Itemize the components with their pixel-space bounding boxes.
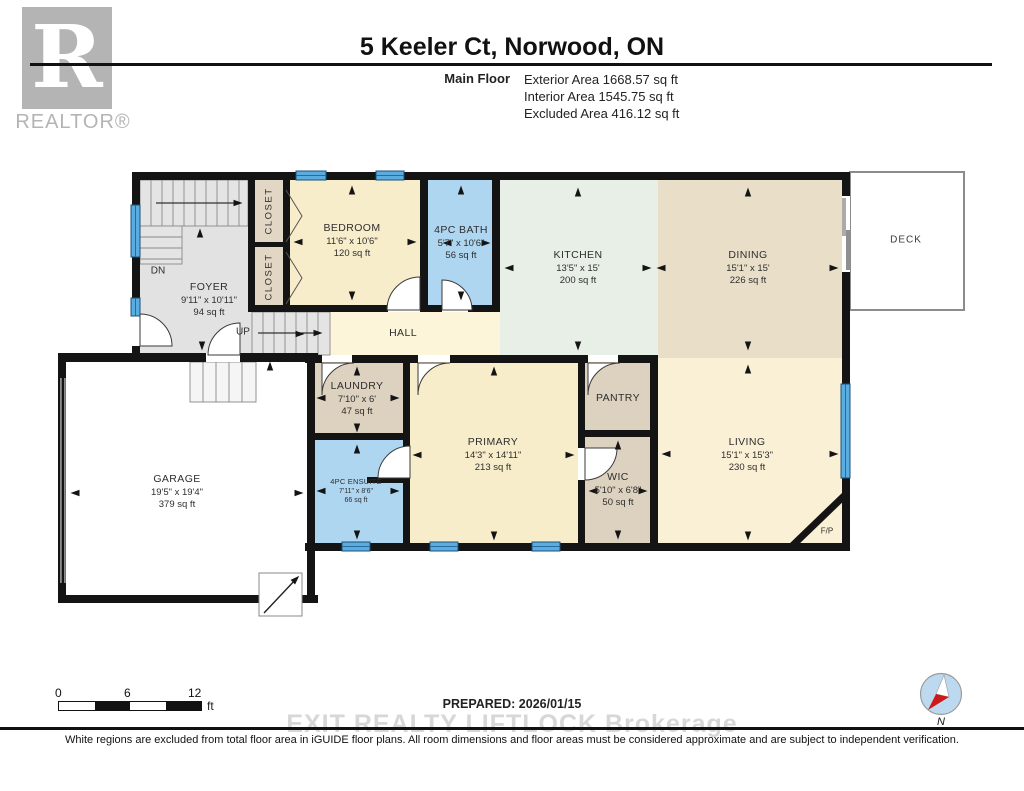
room-label-foyer: FOYER 9'11" x 10'11" 94 sq ft [181, 281, 237, 319]
title-divider [30, 63, 992, 66]
room-label-bath: 4PC BATH 5'7" x 10'6" 56 sq ft [434, 224, 488, 262]
room-area: 94 sq ft [193, 307, 224, 319]
room-label-living: LIVING 15'1" x 15'3" 230 sq ft [721, 436, 773, 474]
garage-entry-stairs [190, 362, 256, 402]
compass-north-label: N [905, 716, 977, 728]
room-label-laundry: LAUNDRY 7'10" x 6' 47 sq ft [331, 380, 384, 418]
room-label-dining: DINING 15'1" x 15' 226 sq ft [726, 249, 769, 287]
room-label-kitchen: KITCHEN 13'5" x 15' 200 sq ft [554, 249, 603, 287]
page-title: 5 Keeler Ct, Norwood, ON [0, 33, 1024, 62]
room-label-bedroom: BEDROOM 11'6" x 10'6" 120 sq ft [323, 222, 380, 260]
room-label-hall: HALL [389, 327, 417, 341]
disclaimer-text: White regions are excluded from total fl… [0, 734, 1024, 746]
room-label-closet-lower: CLOSET [264, 253, 275, 300]
room-label-ensuite: 4PC ENSUITE 7'11" x 8'6" 66 sq ft [330, 477, 381, 505]
compass-icon [905, 668, 977, 718]
fireplace-label: F/P [821, 527, 833, 536]
stairs-dn-label: DN [151, 266, 165, 277]
prepared-date: PREPARED: 2026/01/15 [0, 697, 1024, 711]
room-label-wic: WIC 5'10" x 6'8" 50 sq ft [595, 471, 642, 509]
floor-plan-page: R REALTOR® 5 Keeler Ct, Norwood, ON Main… [0, 0, 1024, 791]
room-label-closet-upper: CLOSET [264, 187, 275, 234]
room-dims: 9'11" x 10'11" [181, 294, 237, 306]
room-label-pantry: PANTRY [596, 392, 640, 406]
room-name: FOYER [190, 281, 228, 295]
room-label-garage: GARAGE 19'5" x 19'4" 379 sq ft [151, 473, 203, 511]
footer-divider [0, 727, 1024, 730]
room-label-deck: DECK [890, 235, 922, 246]
room-label-primary: PRIMARY 14'3" x 14'11" 213 sq ft [465, 436, 522, 474]
sliding-door [842, 196, 850, 272]
garage-exit-door [259, 573, 302, 616]
floor-plan-drawing [0, 0, 1024, 791]
compass: N [905, 668, 977, 734]
stairs-up-label: UP [236, 327, 250, 338]
